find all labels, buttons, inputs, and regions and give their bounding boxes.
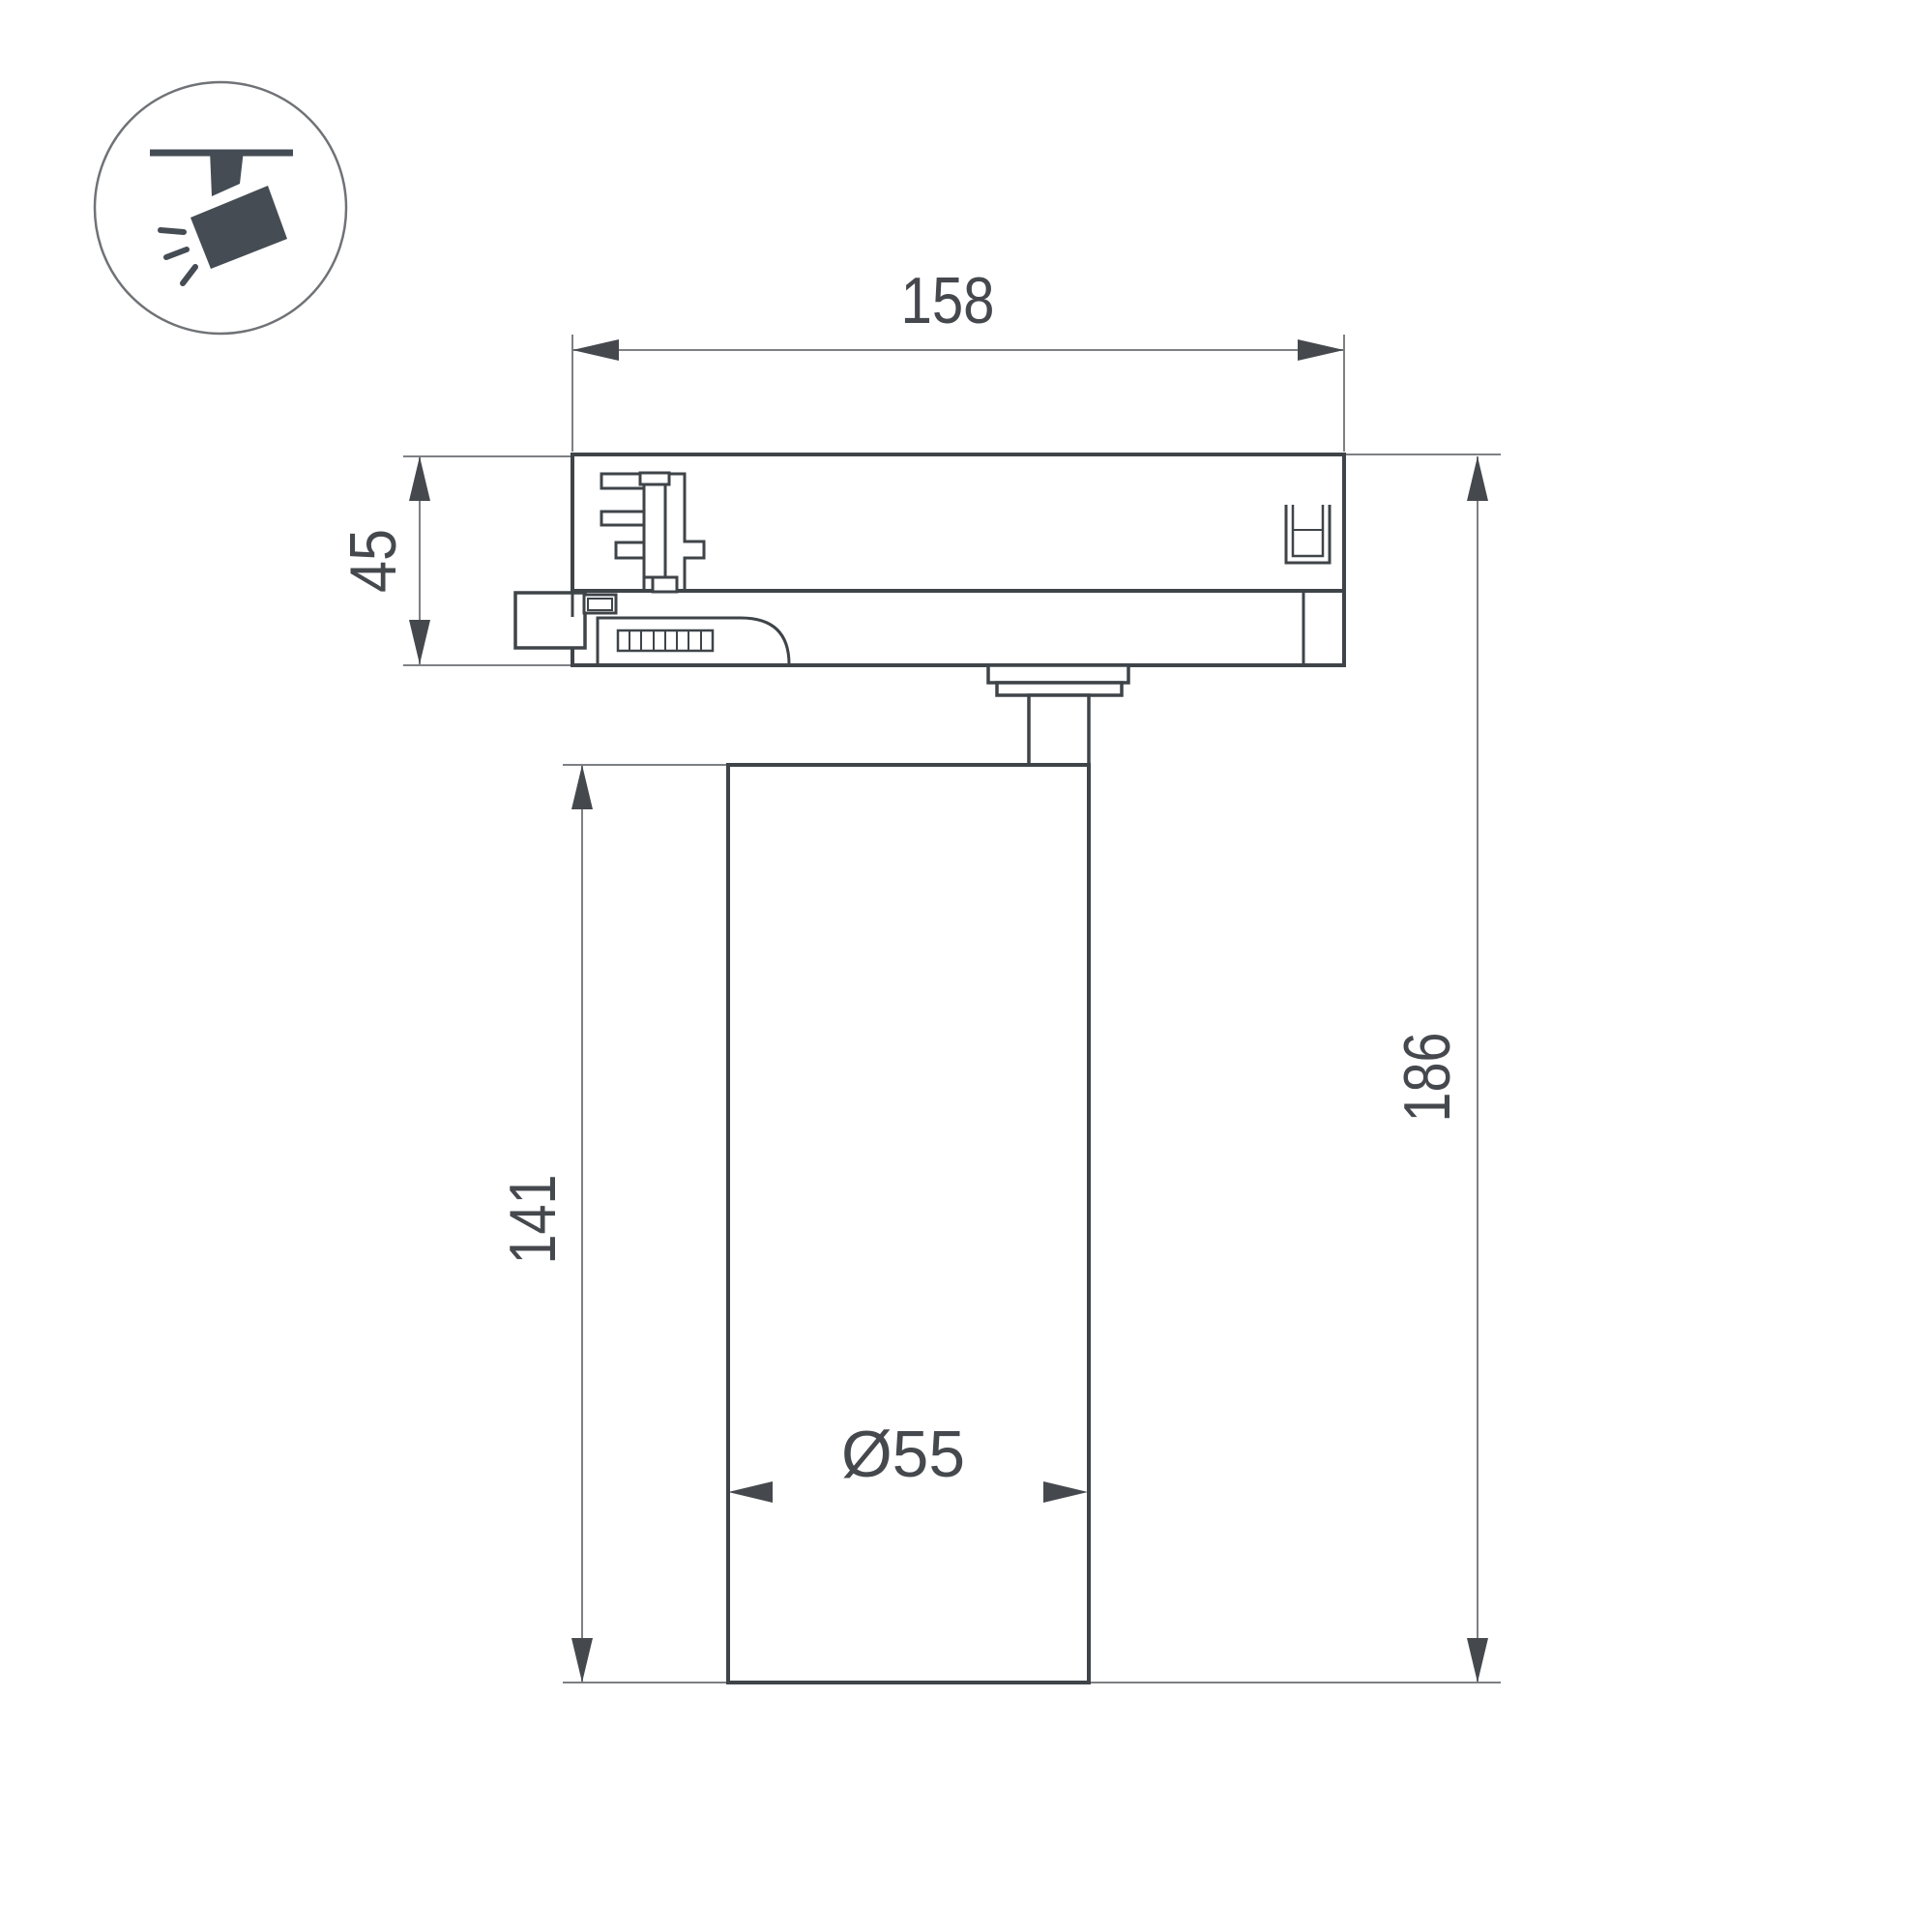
arrow-up: [1467, 456, 1488, 501]
track-spotlight-icon: [95, 82, 346, 334]
stem-neck: [1029, 695, 1089, 765]
label-total-height: 186: [1390, 1033, 1464, 1123]
stem-flange-upper: [988, 665, 1128, 683]
contact-prong: [601, 512, 644, 525]
label-body-diameter: Ø55: [841, 1418, 965, 1491]
contact-pin: [644, 483, 665, 577]
arrow-down: [1467, 1638, 1488, 1683]
technical-drawing: 158 45 141 186 Ø55: [0, 0, 1932, 1932]
label-adapter-height: 45: [337, 529, 410, 593]
track-adapter: [515, 454, 1344, 665]
contact-prong: [601, 474, 644, 488]
arrow-up: [409, 456, 430, 501]
contact-prong: [616, 542, 644, 558]
latch-block: [515, 593, 585, 648]
contact-pin-cap: [640, 473, 669, 484]
driver-housing: [598, 618, 789, 664]
label-body-height: 141: [496, 1175, 570, 1265]
label-total-width: 158: [901, 264, 995, 337]
swivel-stem: [988, 665, 1128, 765]
retaining-clip: [1286, 505, 1330, 563]
arrow-left: [572, 339, 619, 361]
stem-flange-lower: [997, 683, 1122, 695]
arrow-right: [1298, 339, 1344, 361]
arrow-up: [571, 765, 593, 809]
arrow-down: [409, 620, 430, 664]
contact-assembly: [601, 473, 704, 592]
arrow-down: [571, 1638, 593, 1683]
contact-pin-foot: [653, 577, 677, 592]
drawing-page: 158 45 141 186 Ø55: [0, 0, 1932, 1932]
lamp-body: [728, 765, 1089, 1683]
